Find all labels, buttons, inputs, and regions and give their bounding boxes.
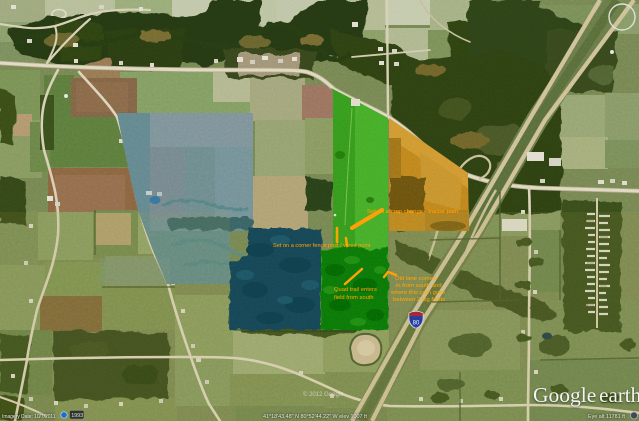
svg-text:Quad trail enters: Quad trail enters <box>334 287 377 293</box>
svg-text:field from south: field from south <box>334 295 374 301</box>
svg-text:© 2012 Google: © 2012 Google <box>303 391 344 398</box>
svg-text:where this path goes: where this path goes <box>390 290 445 296</box>
svg-text:1993: 1993 <box>71 413 83 419</box>
svg-text:in from south and: in from south and <box>396 283 442 289</box>
svg-text:Google earth: Google earth <box>533 383 639 407</box>
svg-text:Set on a corner fence post / w: Set on a corner fence post / weed point <box>273 243 371 249</box>
svg-text:41°18'43.48" N 80°52'44.22" W: 41°18'43.48" N 80°52'44.22" W elev 1007 … <box>263 414 368 420</box>
svg-text:80: 80 <box>413 321 420 327</box>
svg-text:Eye alt 11781 ft: Eye alt 11781 ft <box>588 414 626 420</box>
svg-text:Imagery Date: 10/7/2011: Imagery Date: 10/7/2011 <box>2 414 56 420</box>
svg-text:between 2 big fields: between 2 big fields <box>393 297 445 303</box>
svg-text:Old lane comes: Old lane comes <box>395 276 436 282</box>
svg-text:Set on a crop change - tractor: Set on a crop change - tractor path <box>367 209 458 215</box>
